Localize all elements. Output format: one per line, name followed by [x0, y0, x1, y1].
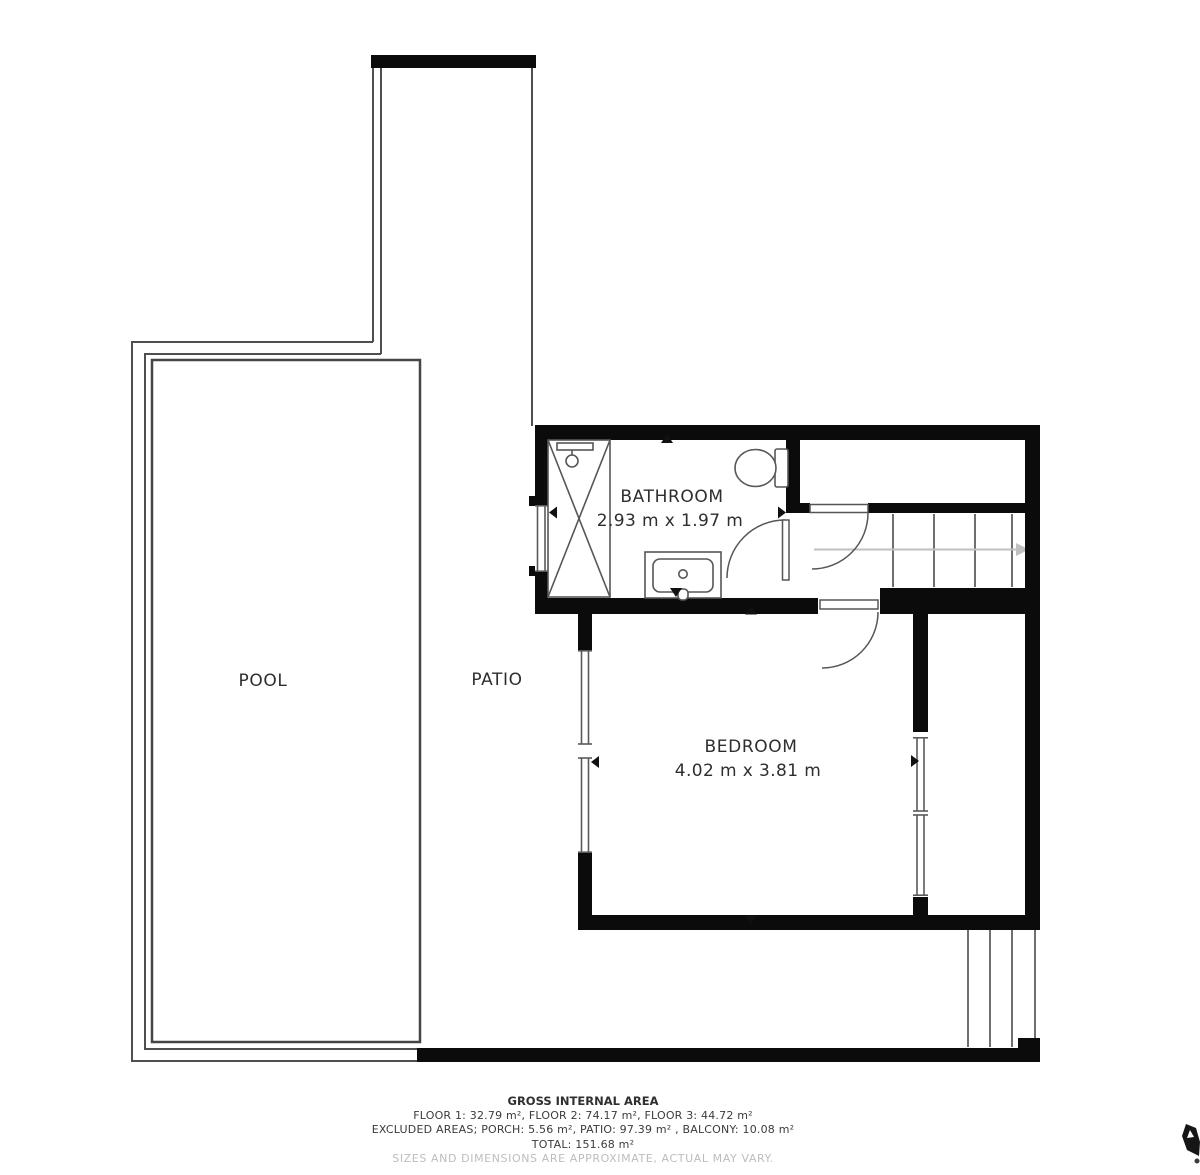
bedroom-left-window: [578, 650, 592, 853]
bedroom-door: [820, 600, 878, 668]
toilet-icon: [735, 449, 788, 487]
bathroom-window: [535, 505, 548, 572]
bathroom-dimensions: 2.93 m x 1.97 m: [597, 511, 744, 531]
area-summary-title: GROSS INTERNAL AREA: [0, 1094, 1166, 1109]
floorplan-drawing: [0, 0, 1200, 1175]
bedroom-label: BEDROOM: [705, 737, 798, 757]
pool-outline: [152, 360, 420, 1042]
area-summary-disclaimer: SIZES AND DIMENSIONS ARE APPROXIMATE, AC…: [0, 1152, 1166, 1167]
sink-icon: [645, 552, 721, 600]
pool-label: POOL: [239, 671, 288, 691]
area-summary-total: TOTAL: 151.68 m²: [0, 1138, 1166, 1153]
bathroom-label: BATHROOM: [620, 487, 723, 507]
patio-label: PATIO: [471, 670, 522, 690]
area-summary-floors: FLOOR 1: 32.79 m², FLOOR 2: 74.17 m², FL…: [0, 1109, 1166, 1124]
area-summary-excluded: EXCLUDED AREAS; PORCH: 5.56 m², PATIO: 9…: [0, 1123, 1166, 1138]
floorplan-page: POOL PATIO BATHROOM 2.93 m x 1.97 m BEDR…: [0, 0, 1200, 1175]
dimension-marker-bedroom-left: [591, 756, 599, 768]
stairs-direction-arrow: [814, 543, 1029, 556]
bedroom-dimensions: 4.02 m x 3.81 m: [675, 761, 822, 781]
watermark-logo: [1182, 1124, 1200, 1164]
dimension-marker-bathroom-right: [778, 507, 786, 519]
landing-door: [810, 505, 868, 570]
exterior-steps: [968, 930, 1035, 1047]
area-summary: GROSS INTERNAL AREA FLOOR 1: 32.79 m², F…: [0, 1094, 1166, 1167]
